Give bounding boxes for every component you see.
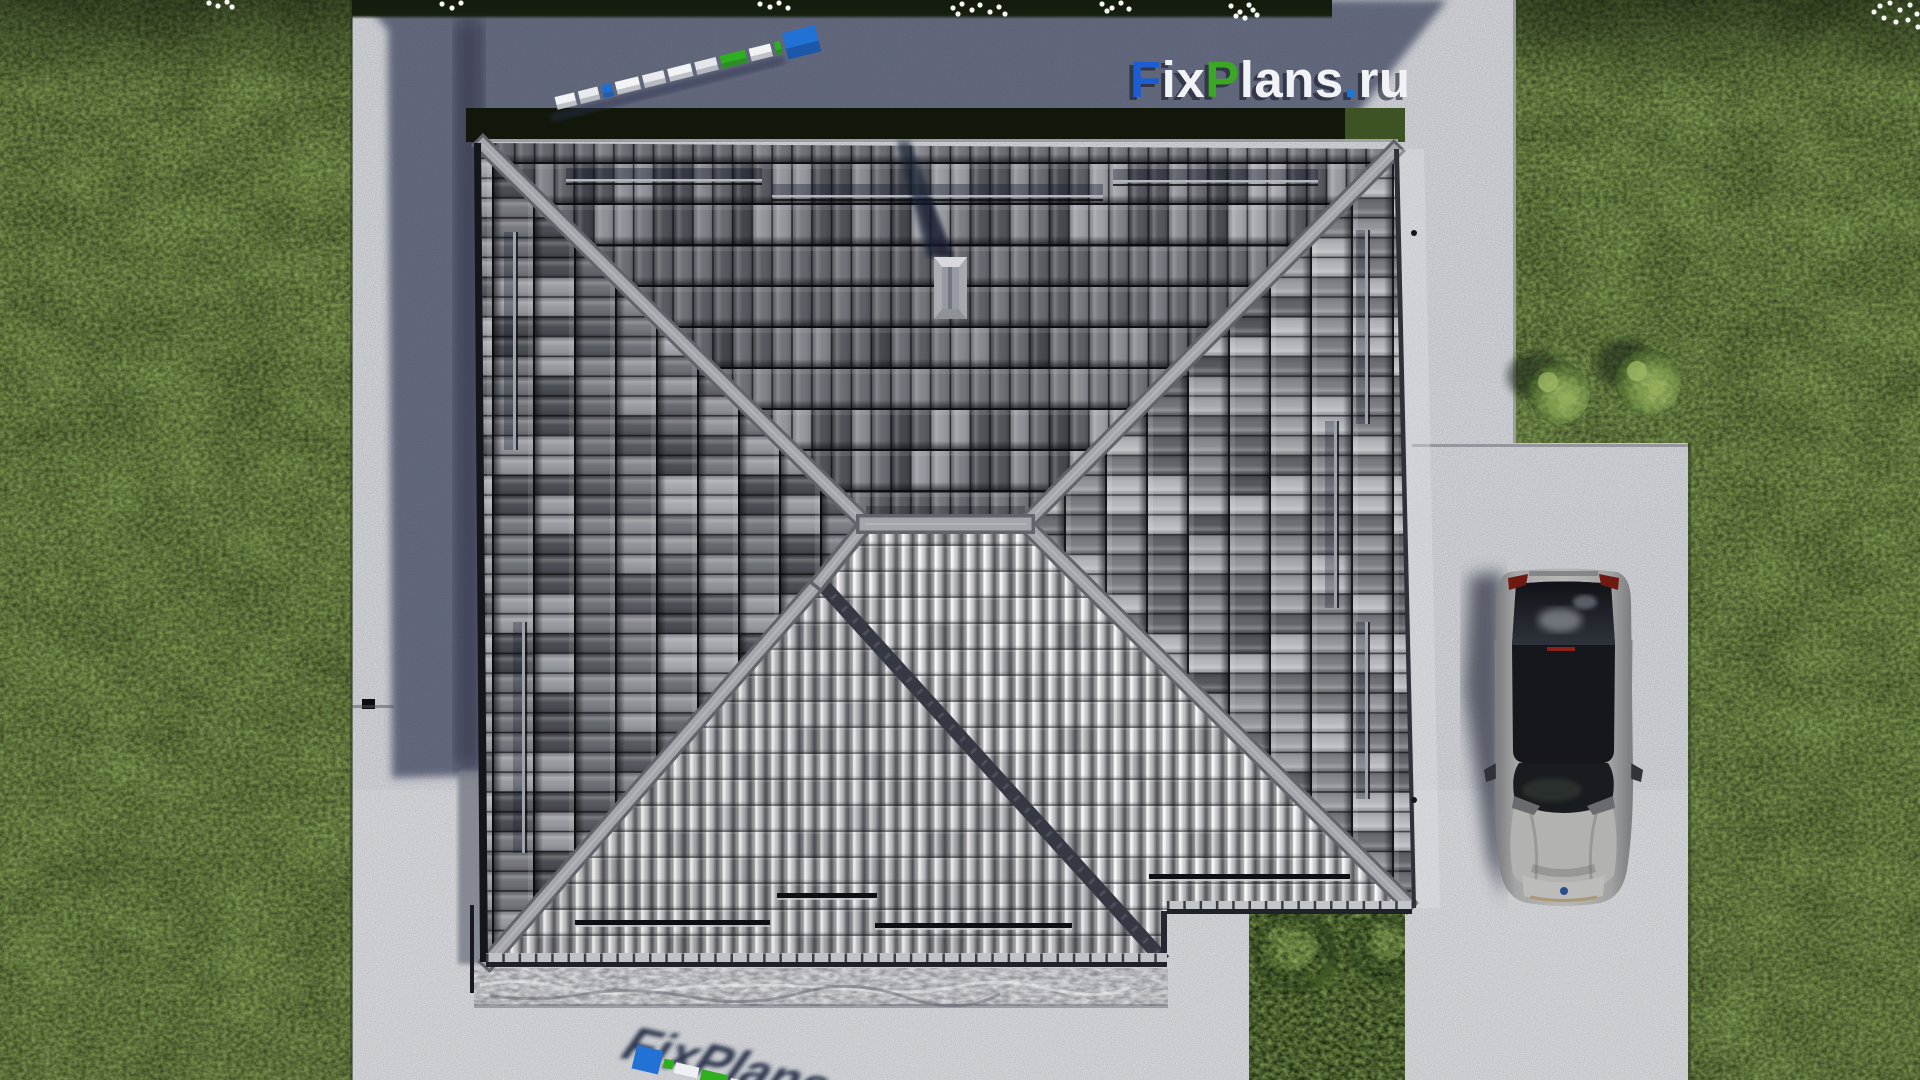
svg-text:FixPlans.ru: FixPlans.ru [1130, 51, 1410, 108]
